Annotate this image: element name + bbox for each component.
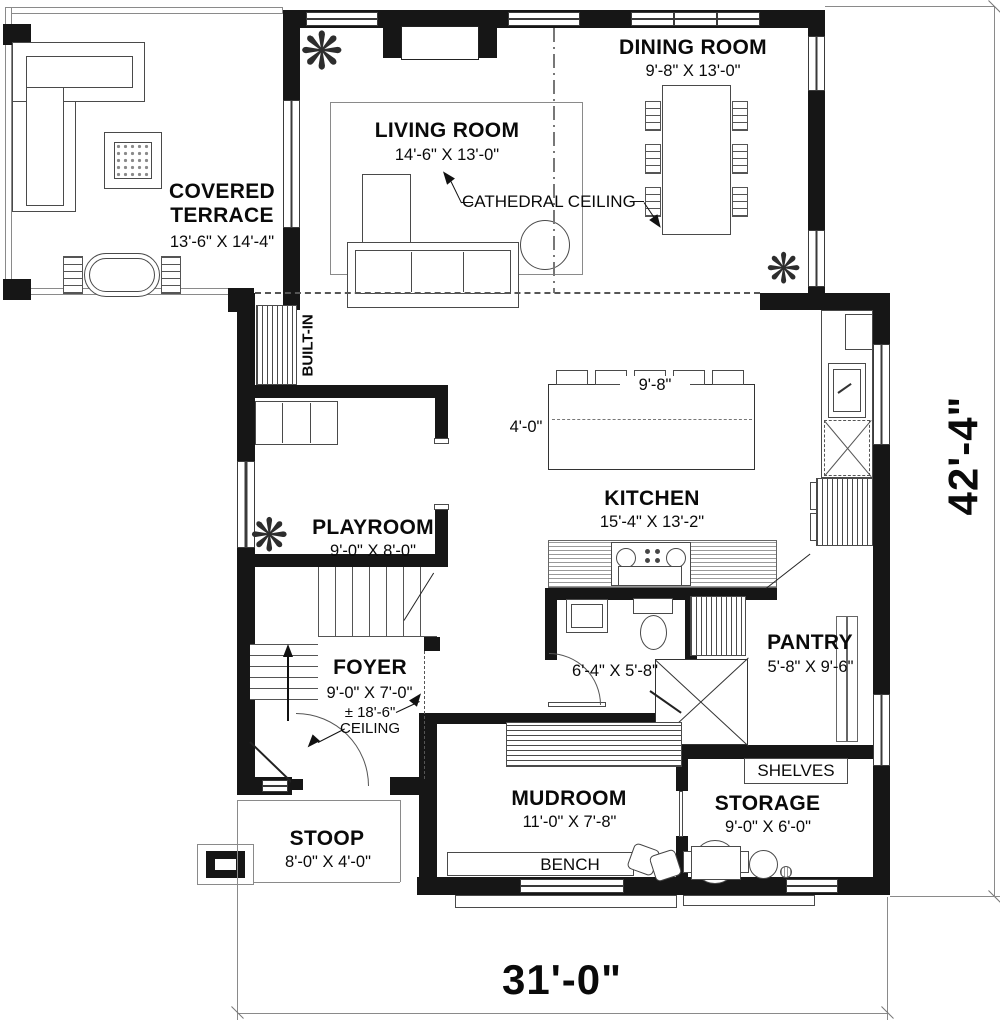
fire-table-stones xyxy=(114,142,152,179)
dining-chair xyxy=(732,144,748,174)
plant-icon: ❋ xyxy=(766,248,801,290)
refrigerator-handle xyxy=(810,482,817,510)
storage-table xyxy=(691,846,741,880)
dining-chair xyxy=(645,144,661,174)
window xyxy=(873,694,890,766)
playroom-sofa-cushion xyxy=(282,403,283,443)
terrace-chair xyxy=(63,256,83,294)
window xyxy=(520,879,624,893)
toilet-tank xyxy=(633,598,673,614)
stair-direction-line xyxy=(287,655,289,721)
annotation-shelves: SHELVES xyxy=(744,761,848,780)
wall-cabinet xyxy=(845,314,873,350)
dining-chair xyxy=(732,101,748,131)
opening-jamb xyxy=(434,438,449,444)
room-label-dining: DINING ROOM xyxy=(608,36,778,60)
storage-chair xyxy=(683,851,692,873)
plant-icon: ❋ xyxy=(250,512,289,558)
refrigerator xyxy=(816,478,873,546)
annotation-cathedral-ceiling: CATHEDRAL CEILING xyxy=(462,192,632,211)
range-knob xyxy=(645,558,650,563)
dimension-line-bottom xyxy=(237,1013,887,1014)
room-label-foyer: FOYER xyxy=(328,656,412,680)
storage-stool xyxy=(749,850,778,879)
terrace-sofa-seat xyxy=(26,56,133,88)
room-label-storage: STORAGE xyxy=(700,792,835,816)
dining-chair xyxy=(645,187,661,217)
window xyxy=(631,12,760,26)
room-label-terrace: COVERED TERRACE xyxy=(152,180,292,227)
room-dims-kitchen: 15'-4" X 13'-2" xyxy=(572,513,732,531)
terrace-post xyxy=(3,279,31,300)
room-label-mudroom: MUDROOM xyxy=(498,787,640,811)
powder-room-dims: 6'-4" X 5'-8" xyxy=(558,662,672,680)
sofa-seat xyxy=(355,250,511,294)
kitchen-sink-basin xyxy=(833,369,861,412)
stoop-edge xyxy=(400,800,401,882)
exterior-step xyxy=(683,895,815,906)
dining-chair xyxy=(732,187,748,217)
extension-line xyxy=(825,6,995,7)
fireplace-firebox xyxy=(401,26,479,60)
annotation-built-in: BUILT-IN xyxy=(301,285,318,405)
island-overhang-dashed xyxy=(552,419,752,420)
terrace-wall-left xyxy=(5,7,12,295)
room-dims-terrace: 13'-6" X 14'-4" xyxy=(152,233,292,251)
range-knob xyxy=(645,549,650,554)
extension-line xyxy=(890,896,1000,897)
window xyxy=(873,344,890,445)
refrigerator-handle xyxy=(810,513,817,541)
coat-closet xyxy=(506,722,682,767)
playroom-right-wall xyxy=(435,385,448,438)
extension-line xyxy=(887,897,888,1020)
stoop-edge xyxy=(237,800,400,801)
sofa-cushion-line xyxy=(463,252,464,292)
opening-jamb xyxy=(434,504,449,510)
side-table xyxy=(520,220,570,270)
room-label-pantry: PANTRY xyxy=(740,631,880,655)
exterior-wall-step xyxy=(760,293,890,310)
range-knob xyxy=(655,549,660,554)
extension-line xyxy=(237,800,238,1020)
foyer-ceiling-label: CEILING xyxy=(330,721,410,738)
storage-door-leaf xyxy=(679,791,683,837)
ceiling-break-dashed xyxy=(255,292,760,294)
playroom-sofa-cushion xyxy=(310,403,311,443)
pantry-cabinet xyxy=(690,596,746,656)
mudroom-west-wall xyxy=(419,713,437,895)
built-in-cabinet xyxy=(256,305,297,385)
room-dims-playroom: 9'-0" X 8'-0" xyxy=(313,542,433,560)
floor-plan: ❋ ❋ ❋ COVERED TERRACE 13'-6" X 14'-4" LI… xyxy=(0,0,1000,1025)
storage-chair xyxy=(740,851,749,873)
room-dims-dining: 9'-8" X 13'-0" xyxy=(618,62,768,80)
door-sidelight xyxy=(262,780,288,792)
playroom-sofa xyxy=(255,401,338,445)
annotation-bench: BENCH xyxy=(505,855,635,874)
powder-sink-basin xyxy=(571,604,603,628)
foyer-boundary-dashed xyxy=(424,651,425,779)
stair-newel xyxy=(424,637,440,651)
room-label-kitchen: KITCHEN xyxy=(577,487,727,511)
range-hood xyxy=(618,566,682,586)
dimension-line-right xyxy=(994,7,995,897)
room-dims-storage: 9'-0" X 6'-0" xyxy=(703,818,833,836)
entry-door-hinge xyxy=(291,779,303,790)
window xyxy=(786,879,838,893)
island-stool xyxy=(556,370,588,385)
room-dims-pantry: 5'-8" X 9'-6" xyxy=(738,658,883,676)
room-label-living: LIVING ROOM xyxy=(357,119,537,143)
toilet-bowl xyxy=(640,615,667,650)
overall-depth-dimension: 42'-4" xyxy=(939,391,986,521)
island-width-label: 9'-8" xyxy=(620,376,690,394)
window-mullion xyxy=(716,13,718,25)
room-dims-foyer: 9'-0" X 7'-0" xyxy=(312,684,427,702)
island-depth-label: 4'-0" xyxy=(496,418,556,436)
playroom-top-wall xyxy=(237,385,448,398)
porch-column-core xyxy=(215,859,236,870)
room-dims-stoop: 8'-0" X 4'-0" xyxy=(278,853,378,871)
room-dims-living: 14'-6" X 13'-0" xyxy=(372,146,522,164)
island-stool xyxy=(712,370,744,385)
window xyxy=(808,36,825,91)
staircase-upper-run xyxy=(318,567,437,637)
room-label-stoop: STOOP xyxy=(282,827,372,851)
window-mullion xyxy=(673,13,675,25)
window xyxy=(808,230,825,287)
exterior-step xyxy=(455,895,677,908)
range-burner xyxy=(616,548,636,568)
stair-up-arrow xyxy=(283,644,293,657)
range-knob xyxy=(655,558,660,563)
sofa-chaise xyxy=(362,174,411,247)
overall-width-dimension: 31'-0" xyxy=(462,956,662,1003)
centerline-dashed xyxy=(553,28,555,293)
terrace-chair xyxy=(161,256,181,294)
dining-table xyxy=(662,85,731,235)
plant-icon: ❋ xyxy=(300,26,344,78)
range-burner xyxy=(666,548,686,568)
terrace-table xyxy=(89,258,155,292)
room-dims-mudroom: 11'-0" X 7'-8" xyxy=(502,813,637,831)
kitchen-island xyxy=(548,384,755,470)
floor-drain xyxy=(780,866,792,878)
sofa-cushion-line xyxy=(411,252,412,292)
dining-chair xyxy=(645,101,661,131)
pantry-bottom-wall xyxy=(655,745,873,759)
room-label-playroom: PLAYROOM xyxy=(308,516,438,540)
window xyxy=(508,12,580,26)
terrace-wall-top xyxy=(8,7,283,14)
powder-left-wall xyxy=(545,600,557,660)
